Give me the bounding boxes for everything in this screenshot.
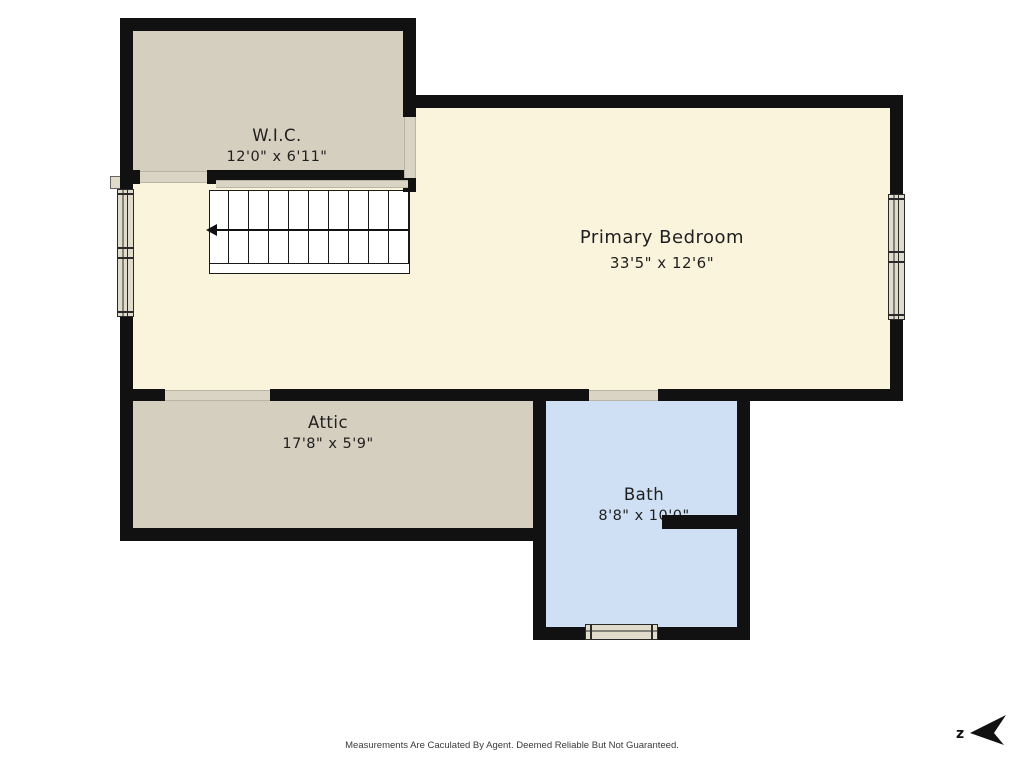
room-name: W.I.C. [192, 126, 362, 145]
disclaimer-text: Measurements Are Caculated By Agent. Dee… [0, 740, 1024, 751]
room-name: Primary Bedroom [556, 227, 768, 248]
window-symbol [117, 189, 134, 317]
room-dimensions: 33'5" x 12'6" [556, 254, 768, 272]
bath-partition-wall [662, 515, 750, 529]
door-opening [404, 117, 416, 178]
wall-segment [120, 18, 416, 31]
wall-segment [120, 528, 546, 541]
wall-segment [890, 95, 903, 195]
room-dimensions: 17'8" x 5'9" [243, 436, 413, 452]
room-label-attic: Attic 17'8" x 5'9" [243, 413, 413, 452]
room-dimensions: 12'0" x 6'11" [192, 149, 362, 165]
floor-plan-canvas: Bath 8'8" x 10'0" W.I.C. 12'0" x 6'11" P… [0, 0, 1024, 768]
wall-segment [120, 389, 165, 401]
stairs-arrow-head-icon [206, 224, 217, 236]
room-label-primary-bedroom: Primary Bedroom 33'5" x 12'6" [556, 227, 768, 272]
wall-segment [410, 95, 903, 108]
door-opening [140, 171, 207, 183]
wall-segment [658, 389, 903, 401]
door-opening [589, 390, 658, 401]
wall-segment [533, 389, 546, 640]
wall-segment [120, 170, 140, 184]
stairs-direction-arrow [213, 229, 408, 231]
window-symbol [585, 624, 658, 640]
stairs-treads [209, 190, 410, 264]
room-name: Attic [243, 413, 413, 432]
stair-landing-edge [216, 180, 408, 188]
compass: z [948, 710, 1018, 752]
wall-segment [533, 627, 585, 640]
door-opening [165, 390, 270, 401]
room-label-wic: W.I.C. 12'0" x 6'11" [192, 126, 362, 165]
compass-label: z [956, 726, 964, 742]
room-name: Bath [559, 485, 729, 504]
window-symbol [888, 194, 905, 320]
north-arrow-icon [965, 710, 1013, 750]
wall-segment [658, 627, 750, 640]
